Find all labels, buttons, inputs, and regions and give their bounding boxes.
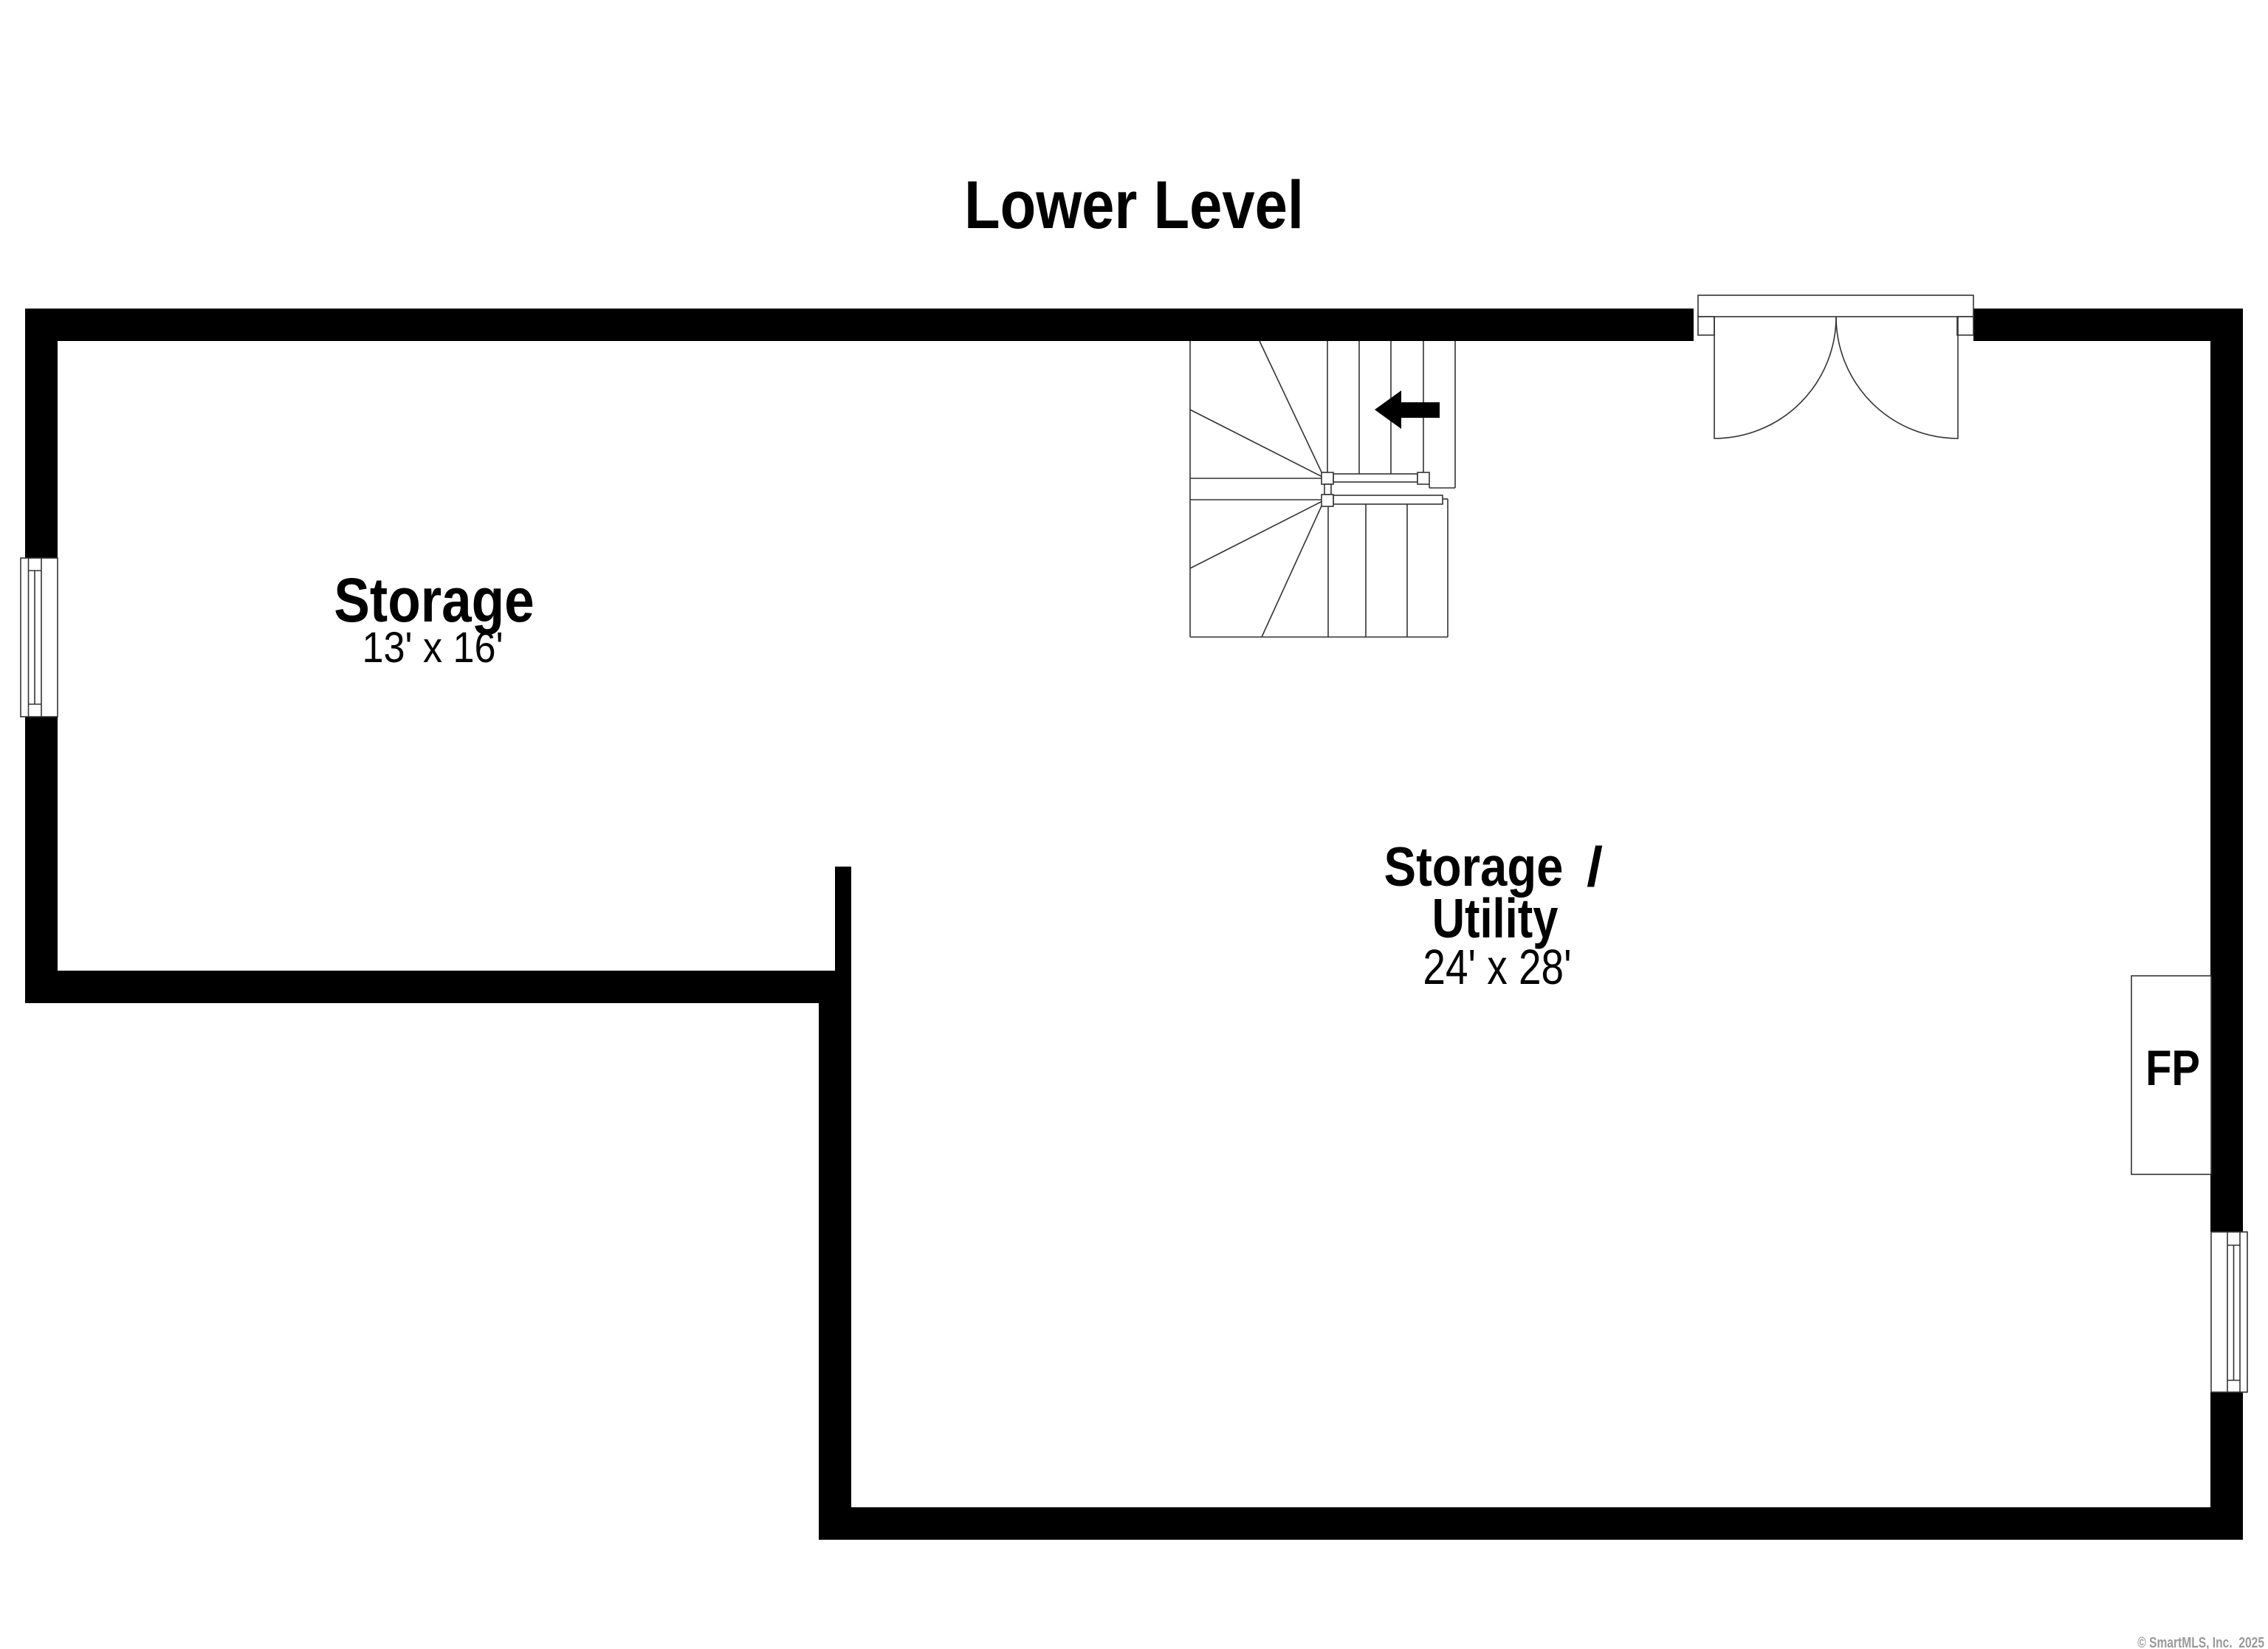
svg-text:Lower Level: Lower Level (964, 168, 1304, 244)
svg-text:24' x 28': 24' x 28' (1423, 940, 1571, 994)
svg-text:© SmartMLS, Inc. 2025: © SmartMLS, Inc. 2025 (2137, 1634, 2264, 1649)
svg-text:/: / (1587, 836, 1603, 898)
svg-text:FP: FP (2145, 1041, 2200, 1096)
svg-text:13' x 16': 13' x 16' (362, 623, 503, 671)
